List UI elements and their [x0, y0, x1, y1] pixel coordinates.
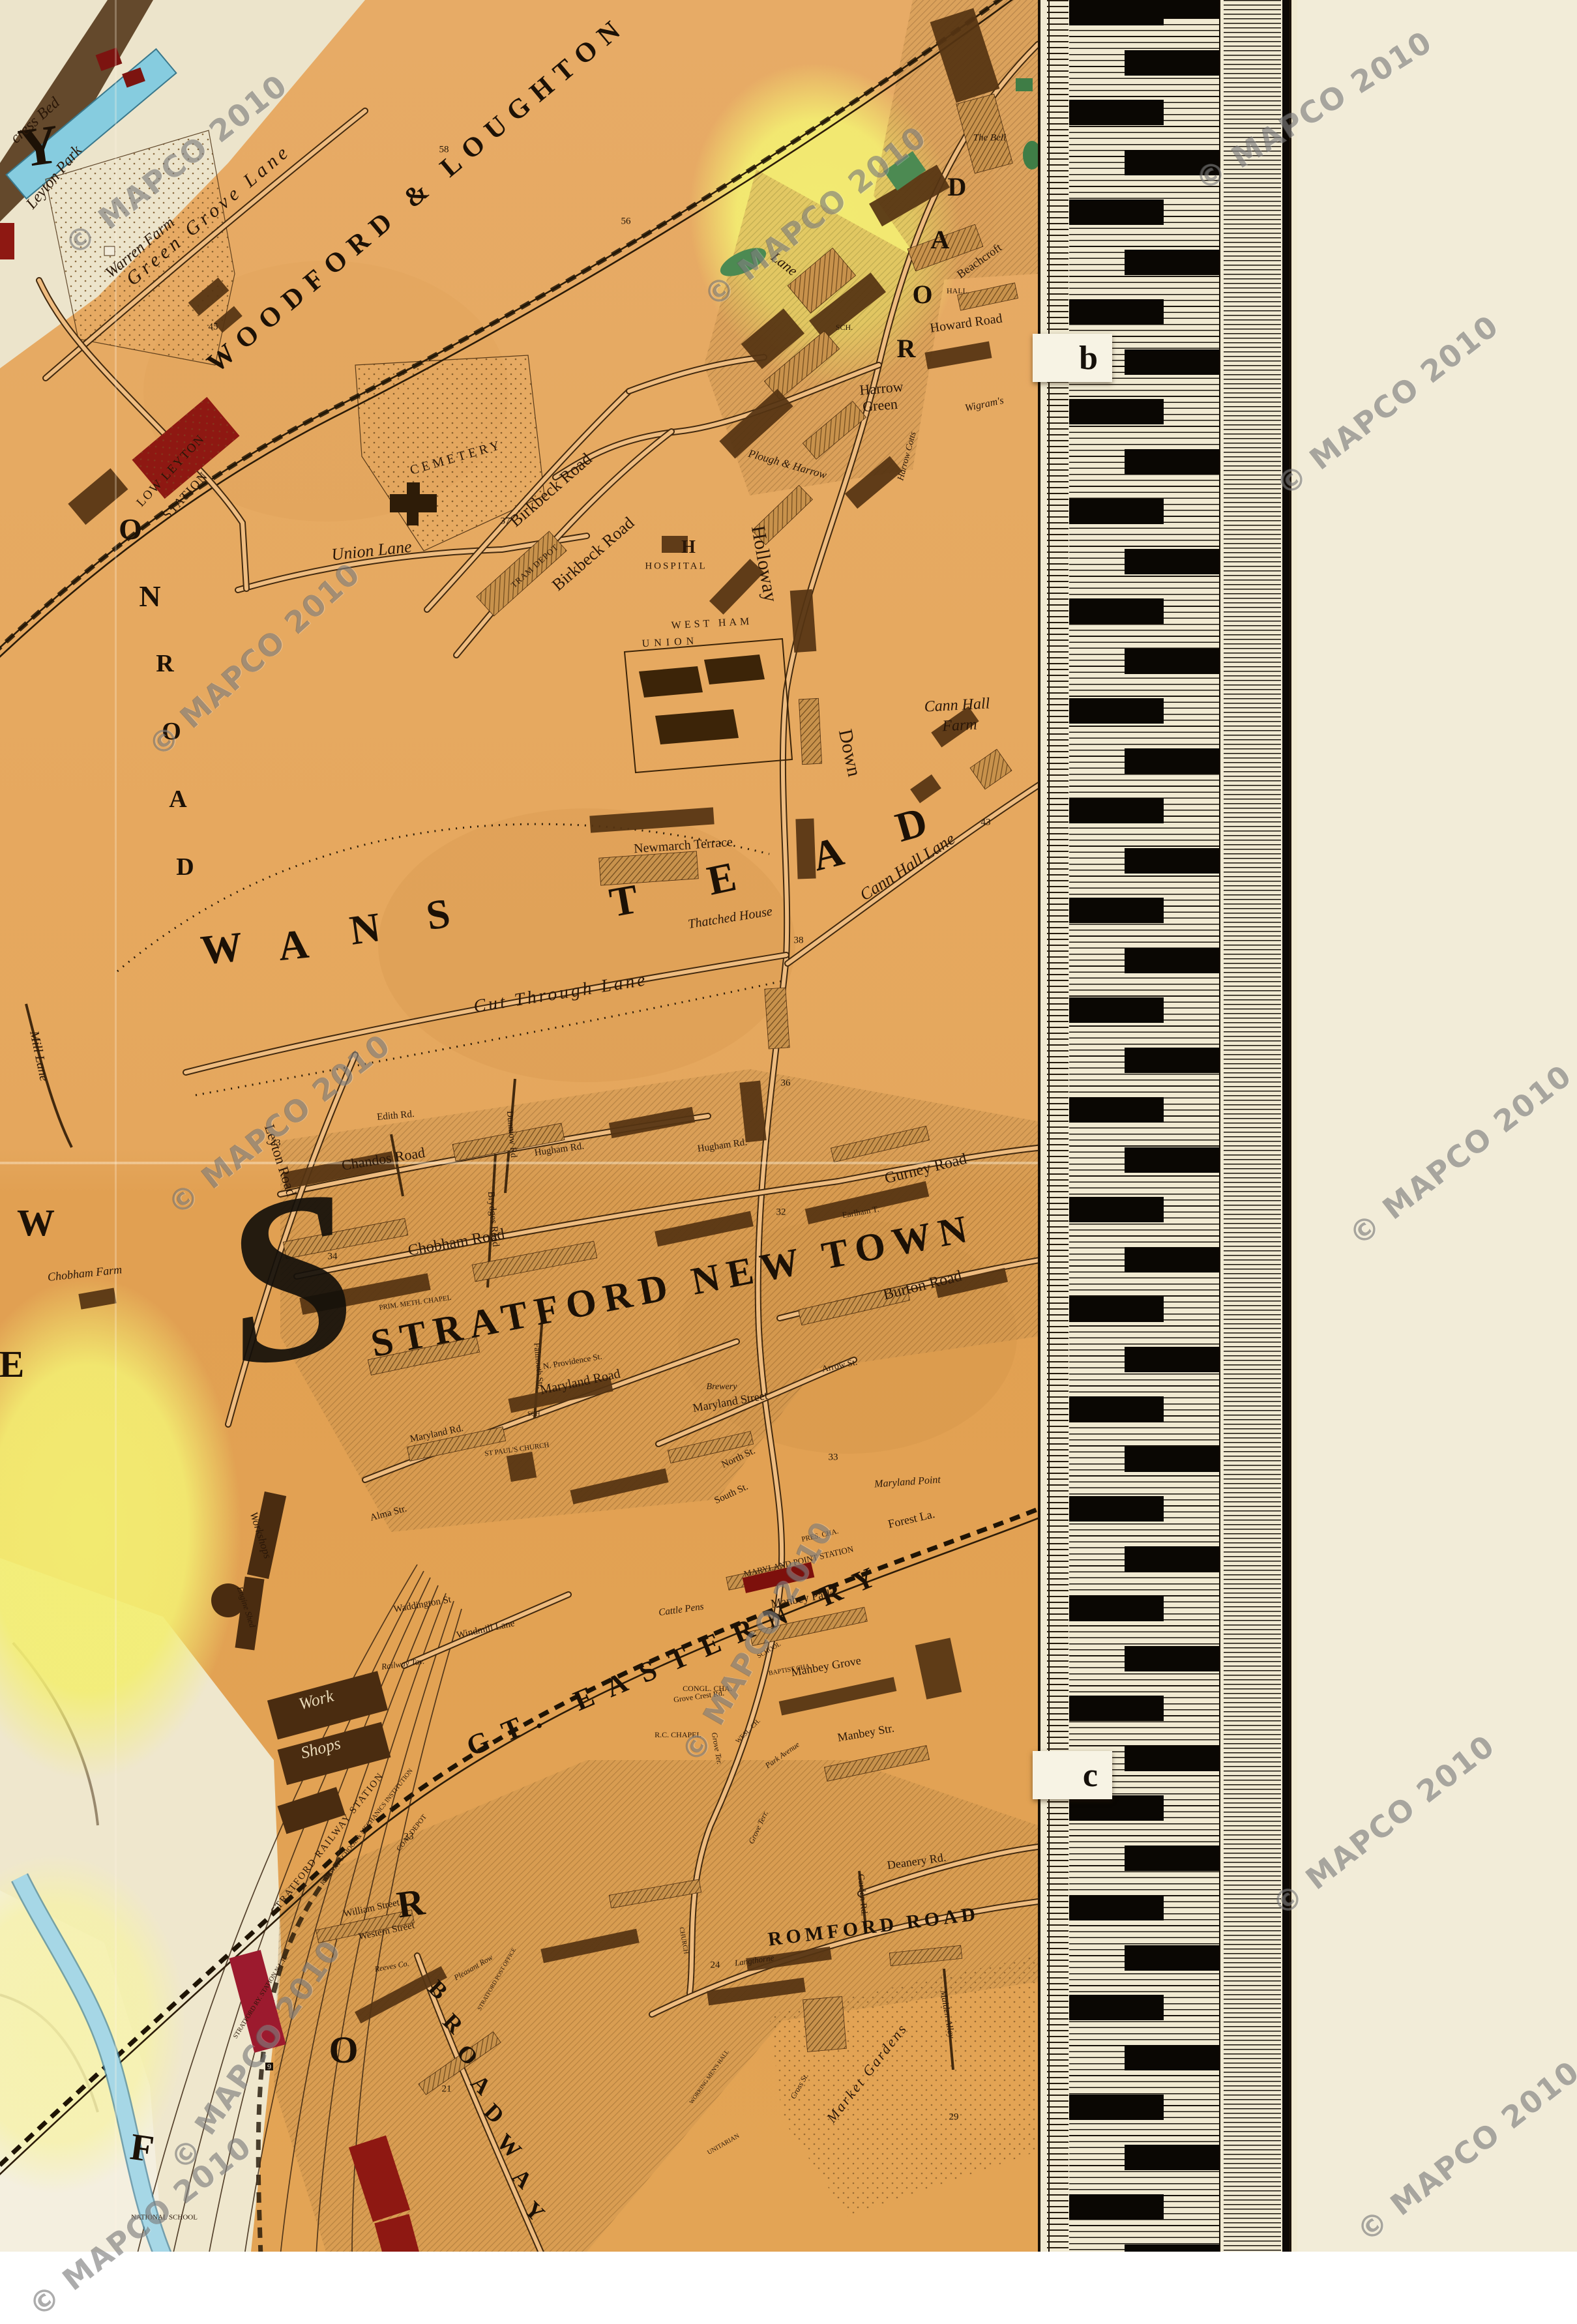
map-canvas [0, 0, 1038, 2252]
plot-number: 43 [981, 818, 991, 828]
district-letter: O [329, 2031, 358, 2069]
plot-number: 56 [621, 217, 631, 227]
place-label: The Bell [973, 134, 1006, 143]
wanstead-letter: N [347, 906, 383, 952]
scanned-map-page: WOODFORD & LOUGHTONGT. EASTERN RYSTRATFO… [0, 0, 1577, 2252]
road-letter: R [156, 651, 173, 676]
plot-number: 32 [776, 1208, 786, 1218]
paper-fold-crease [0, 1162, 1038, 1164]
plot-number: 37 [501, 517, 510, 527]
border-fine-rules [1224, 0, 1281, 2252]
place-label: HALL [947, 287, 967, 295]
grid-tab-b: b [1033, 334, 1112, 382]
plot-number: 33 [829, 1453, 838, 1463]
paper-fold-crease [115, 0, 117, 2252]
copyright-watermark: © MAPCO 2010 [1350, 2053, 1577, 2249]
road-letter: D [948, 174, 967, 200]
place-label: Farm [942, 717, 978, 735]
road-letter: D [176, 855, 194, 879]
plot-number: 34 [328, 1252, 338, 1262]
place-label: SCH. [836, 323, 853, 331]
plot-number: 58 [439, 145, 449, 155]
place-label: SCH. [527, 1411, 542, 1418]
place-label: Green [862, 397, 898, 415]
road-letter: O [912, 282, 932, 308]
copyright-watermark: © MAPCO 2010 [1265, 1728, 1502, 1923]
plot-number: 29 [949, 2113, 959, 2123]
wanstead-letter: A [276, 923, 311, 967]
plot-number: 21 [442, 2085, 452, 2095]
map-sheet: WOODFORD & LOUGHTONGT. EASTERN RYSTRATFO… [0, 0, 1038, 2252]
hospital-symbol: H [681, 538, 696, 557]
road-letter: R [897, 336, 916, 362]
road-letter: O [119, 514, 142, 544]
grid-tab-c: c [1033, 1751, 1112, 1799]
place-label: Harrow [859, 379, 904, 398]
place-label: Cann Hall [924, 696, 990, 714]
plot-number: 24 [711, 1961, 720, 1971]
plot-number: 45 [209, 323, 218, 332]
west-ham-union-buildings [625, 639, 792, 772]
wanstead-letter: W [199, 926, 244, 971]
copyright-watermark: © MAPCO 2010 [1269, 308, 1506, 503]
place-label: Brewery [707, 1383, 737, 1392]
place-label: HOSPITAL [645, 562, 707, 572]
plot-number: 23 [404, 1832, 414, 1842]
plot-number: 36 [781, 1079, 791, 1089]
copyright-watermark: © MAPCO 2010 [1342, 1057, 1577, 1253]
district-letter: E [0, 1346, 24, 1383]
district-letter: W [17, 1204, 55, 1242]
road-letter: A [931, 227, 950, 253]
road-letter: A [169, 787, 186, 812]
road-letter: N [139, 581, 160, 611]
plot-number: 38 [794, 936, 804, 946]
